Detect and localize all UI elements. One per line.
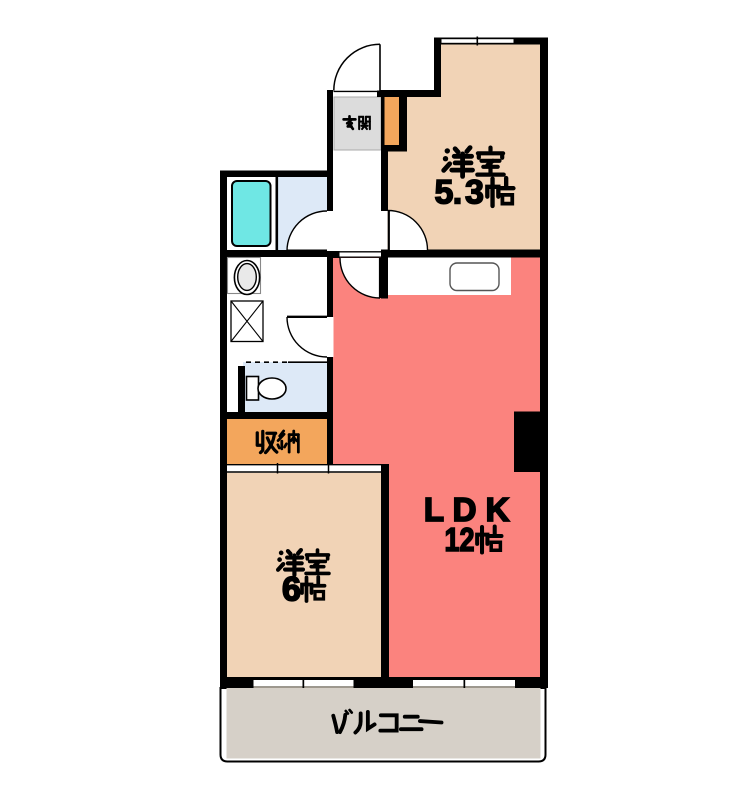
svg-text:5: 5	[435, 174, 454, 212]
svg-text:.: .	[453, 174, 462, 212]
svg-text:6: 6	[282, 571, 301, 609]
svg-text:12: 12	[445, 521, 475, 558]
svg-text:3: 3	[465, 174, 484, 212]
svg-text:L: L	[424, 491, 444, 528]
svg-text:K: K	[486, 491, 510, 528]
